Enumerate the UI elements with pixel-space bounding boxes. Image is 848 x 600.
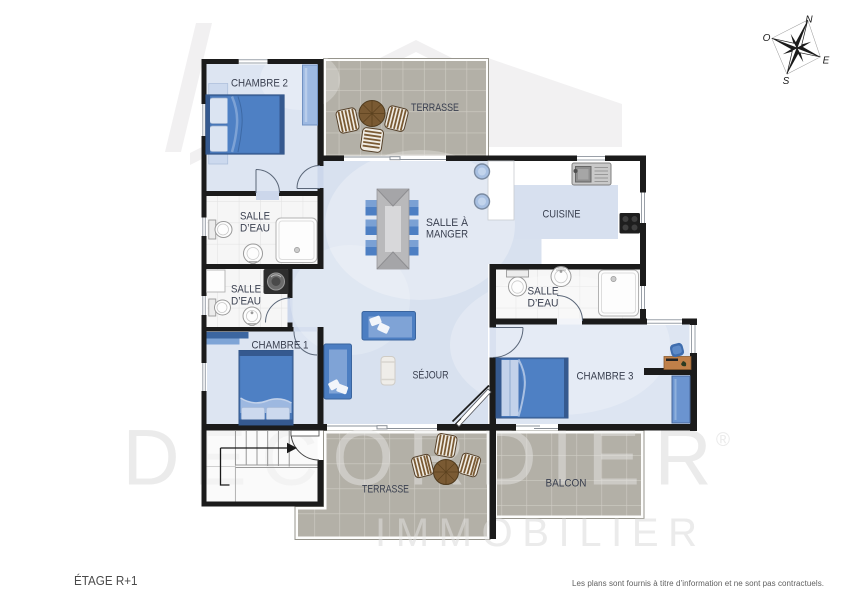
svg-text:SALLE À: SALLE À [426,216,468,229]
svg-text:O: O [763,33,771,44]
svg-text:ÉTAGE R+1: ÉTAGE R+1 [74,573,138,588]
svg-text:CUISINE: CUISINE [543,209,581,221]
svg-text:D’EAU: D’EAU [231,296,261,308]
svg-text:E: E [823,56,830,67]
svg-text:SALLE: SALLE [240,211,270,223]
svg-text:MANGER: MANGER [426,229,468,241]
svg-text:N: N [805,15,813,26]
svg-text:CHAMBRE 3: CHAMBRE 3 [577,371,634,383]
svg-text:®: ® [716,430,730,451]
svg-text:IMMOBILIER: IMMOBILIER [375,511,697,555]
svg-text:Les plans sont fournis à titre: Les plans sont fournis à titre d’informa… [572,579,824,588]
svg-text:S: S [783,76,790,87]
svg-text:TERRASSE: TERRASSE [362,484,409,496]
svg-text:SALLE: SALLE [231,284,261,296]
svg-text:SÉJOUR: SÉJOUR [413,369,449,382]
svg-text:BALCON: BALCON [546,478,587,490]
svg-text:CHAMBRE 2: CHAMBRE 2 [231,78,288,90]
svg-text:TERRASSE: TERRASSE [411,102,459,114]
svg-text:D’EAU: D’EAU [240,223,270,235]
svg-text:CHAMBRE 1: CHAMBRE 1 [252,340,309,352]
svg-text:SALLE: SALLE [528,286,559,298]
svg-text:D’EAU: D’EAU [528,298,559,310]
